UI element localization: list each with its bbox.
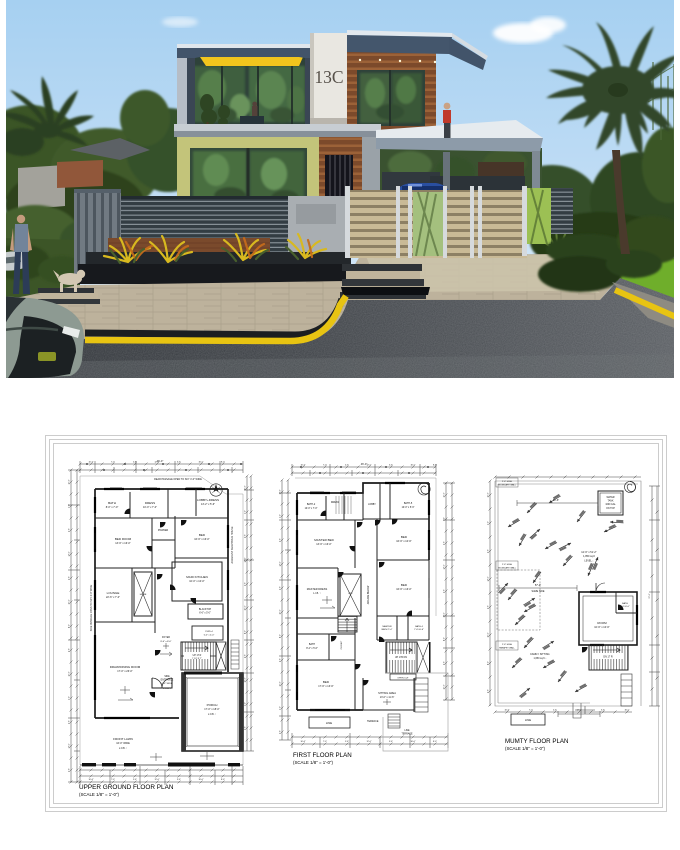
svg-text:7'-0": 7'-0" <box>111 462 115 464</box>
svg-text:10'-6": 10'-6" <box>443 684 445 689</box>
svg-text:12'-6" x 51'-2": 12'-6" x 51'-2" <box>581 551 596 554</box>
svg-text:UP 17 R: UP 17 R <box>193 655 202 657</box>
svg-text:1,850 sq.ft: 1,850 sq.ft <box>583 555 595 558</box>
svg-text:FAMILY SITTING: FAMILY SITTING <box>530 653 549 656</box>
svg-text:LEVEL ↓: LEVEL ↓ <box>584 560 593 563</box>
svg-text:LOUNGE: LOUNGE <box>107 591 120 595</box>
svg-text:3'-6": 3'-6" <box>244 582 246 586</box>
svg-text:TERRACE: TERRACE <box>402 733 413 736</box>
svg-text:7'-0": 7'-0" <box>279 514 281 518</box>
svg-text:8'-0": 8'-0" <box>68 624 70 628</box>
svg-text:17'-0" x 26'-0": 17'-0" x 26'-0" <box>117 670 132 673</box>
svg-text:10'-0" x 5'-6": 10'-0" x 5'-6" <box>402 507 415 509</box>
svg-text:10'-6": 10'-6" <box>68 671 70 676</box>
svg-text:BED ROOM: BED ROOM <box>115 537 132 541</box>
svg-text:13'-6" x 16'-0": 13'-6" x 16'-0" <box>115 542 130 545</box>
svg-text:(SCALE 1/8" = 1'-0"): (SCALE 1/8" = 1'-0") <box>79 792 119 797</box>
svg-text:ADJACENT NEIGHBOUR HOUSE: ADJACENT NEIGHBOUR HOUSE <box>231 526 234 563</box>
svg-text:5'-6": 5'-6" <box>279 730 281 734</box>
svg-text:ON TOP: ON TOP <box>606 508 615 510</box>
svg-text:BOUNDARY WALL: BOUNDARY WALL <box>498 567 517 570</box>
svg-text:P.WD-4: P.WD-4 <box>205 631 213 633</box>
svg-text:10'-6": 10'-6" <box>443 492 445 497</box>
svg-text:17'-6" x 13'-6": 17'-6" x 13'-6" <box>318 685 333 688</box>
svg-text:SIDE PASSAGE OPEN TO SKY 3'-0": SIDE PASSAGE OPEN TO SKY 3'-0" WIDE <box>90 584 93 631</box>
svg-text:BED: BED <box>199 533 206 537</box>
svg-text:12'-0": 12'-0" <box>279 561 281 566</box>
svg-text:10'-6": 10'-6" <box>300 465 305 467</box>
svg-text:12'-0": 12'-0" <box>487 576 489 581</box>
svg-text:8'-0" x 8'-0": 8'-0" x 8'-0" <box>160 641 171 643</box>
svg-text:FRONT LAWN: FRONT LAWN <box>113 737 133 741</box>
svg-text:22'-6" x 7'-0": 22'-6" x 7'-0" <box>106 596 120 599</box>
svg-text:LOBBY: LOBBY <box>368 504 376 506</box>
svg-text:MASTER: MASTER <box>382 625 392 628</box>
svg-text:57'-0": 57'-0" <box>535 584 541 587</box>
svg-text:TANK: TANK <box>608 500 614 503</box>
svg-text:2'-6" HIGH: 2'-6" HIGH <box>502 564 512 566</box>
svg-text:5'-6": 5'-6" <box>133 779 137 781</box>
svg-text:10'-6": 10'-6" <box>300 741 305 743</box>
svg-text:7'-0": 7'-0" <box>323 465 327 467</box>
svg-text:5'-6": 5'-6" <box>244 534 246 538</box>
svg-text:37'-6": 37'-6" <box>649 593 651 598</box>
svg-text:4'-6": 4'-6" <box>244 654 246 658</box>
svg-text:7'-0": 7'-0" <box>529 709 533 711</box>
svg-text:10'-6": 10'-6" <box>244 485 246 490</box>
svg-text:(SCALE 1/8" = 1'-0"): (SCALE 1/8" = 1'-0") <box>505 746 545 751</box>
svg-text:BATH: BATH <box>309 643 315 646</box>
svg-text:12'-0": 12'-0" <box>244 557 246 562</box>
svg-text:6'-0" x 4'-0": 6'-0" x 4'-0" <box>204 635 215 637</box>
svg-text:(SCALE 1/8" = 1'-0"): (SCALE 1/8" = 1'-0") <box>293 760 333 765</box>
svg-text:OPEN CUT: OPEN CUT <box>397 678 409 680</box>
svg-text:3'-6": 3'-6" <box>279 586 281 590</box>
svg-text:L.O.B. ↑: L.O.B. ↑ <box>208 713 216 716</box>
svg-text:BED: BED <box>323 680 330 684</box>
svg-text:5'-6": 5'-6" <box>487 549 489 553</box>
svg-text:16'-0": 16'-0" <box>279 609 281 614</box>
svg-text:10'-6": 10'-6" <box>487 492 489 497</box>
svg-text:3'-6": 3'-6" <box>389 465 393 467</box>
svg-text:4'-6": 4'-6" <box>443 661 445 665</box>
svg-text:3'-6": 3'-6" <box>68 576 70 580</box>
svg-text:5'-6": 5'-6" <box>345 741 349 743</box>
svg-text:8'-0": 8'-0" <box>433 465 437 467</box>
svg-text:13'-6" x 16'-0": 13'-6" x 16'-0" <box>316 543 331 546</box>
svg-text:3'-6": 3'-6" <box>177 462 181 464</box>
svg-text:10'-0" x 7'-0": 10'-0" x 7'-0" <box>305 508 318 510</box>
svg-text:8'-0": 8'-0" <box>433 741 437 743</box>
svg-text:16'-0": 16'-0" <box>244 605 246 610</box>
svg-text:BATH-2: BATH-2 <box>307 503 316 506</box>
svg-text:DN 17 R: DN 17 R <box>603 656 612 659</box>
svg-text:7'-0": 7'-0" <box>244 702 246 706</box>
svg-text:7'-0": 7'-0" <box>68 696 70 700</box>
svg-text:BATH-4: BATH-4 <box>415 625 423 628</box>
svg-text:5'-6": 5'-6" <box>244 726 246 730</box>
svg-text:12'-0": 12'-0" <box>154 462 159 464</box>
svg-text:DRESS: DRESS <box>145 501 155 505</box>
svg-text:12'-0": 12'-0" <box>366 465 371 467</box>
svg-text:5'-6": 5'-6" <box>345 465 349 467</box>
svg-text:16'-0": 16'-0" <box>487 632 489 637</box>
svg-text:REAR PASSAGE OPEN TO SKY 4'-0": REAR PASSAGE OPEN TO SKY 4'-0" WIDE <box>154 478 202 481</box>
svg-text:16'-6" x 16'-0": 16'-6" x 16'-0" <box>194 538 209 541</box>
svg-text:2'-6" HIGH: 2'-6" HIGH <box>502 481 512 483</box>
svg-text:BATH 7'x7': BATH 7'x7' <box>382 628 393 631</box>
svg-text:DRAW/DINING ROOM: DRAW/DINING ROOM <box>110 665 141 669</box>
svg-text:7'-0": 7'-0" <box>279 706 281 710</box>
svg-text:BATH: BATH <box>622 602 628 605</box>
svg-text:5'-6": 5'-6" <box>68 720 70 724</box>
svg-text:17'-0" x 18'-0": 17'-0" x 18'-0" <box>204 708 219 711</box>
svg-text:10'-6": 10'-6" <box>279 489 281 494</box>
svg-text:13'-2" x 5'-6": 13'-2" x 5'-6" <box>201 503 215 506</box>
svg-text:7'-0": 7'-0" <box>323 741 327 743</box>
svg-text:16'-0": 16'-0" <box>198 779 203 781</box>
svg-text:SIDE: SIDE <box>164 676 170 678</box>
svg-text:8'-0": 8'-0" <box>279 634 281 638</box>
svg-text:LIFT: LIFT <box>348 593 353 595</box>
svg-text:LINE: LINE <box>404 730 410 732</box>
svg-text:MUMTY FLOOR PLAN: MUMTY FLOOR PLAN <box>505 738 569 745</box>
svg-text:4'-6": 4'-6" <box>279 658 281 662</box>
svg-text:8'-0": 8'-0" <box>221 462 225 464</box>
svg-text:5'-6": 5'-6" <box>443 541 445 545</box>
svg-text:46'-0": 46'-0" <box>365 747 372 751</box>
svg-text:7'-0": 7'-0" <box>443 517 445 521</box>
svg-text:UPPER GROUND FLOOR PLAN: UPPER GROUND FLOOR PLAN <box>79 784 174 791</box>
svg-text:13'-0" x 11'-6": 13'-0" x 11'-6" <box>380 696 395 699</box>
svg-text:10'-0" x 10'-0": 10'-0" x 10'-0" <box>189 580 204 583</box>
svg-text:16'-0": 16'-0" <box>410 741 415 743</box>
svg-text:3'-6": 3'-6" <box>601 709 605 711</box>
svg-text:10'-6": 10'-6" <box>68 479 70 484</box>
svg-text:8'-0": 8'-0" <box>244 630 246 634</box>
svg-text:3'-6": 3'-6" <box>443 589 445 593</box>
svg-text:4'-6": 4'-6" <box>68 648 70 652</box>
svg-text:10'-6": 10'-6" <box>88 779 93 781</box>
svg-text:WATER: WATER <box>606 496 614 499</box>
svg-text:10'-6": 10'-6" <box>504 709 509 711</box>
svg-text:ARCADE BELOW: ARCADE BELOW <box>367 585 370 604</box>
svg-text:16'-0" WIDE: 16'-0" WIDE <box>116 742 130 745</box>
svg-text:10'-6": 10'-6" <box>88 462 93 464</box>
svg-text:TERRACE: TERRACE <box>367 720 379 723</box>
svg-text:13C: 13C <box>314 67 343 87</box>
svg-text:6'-6" x 5'-0": 6'-6" x 5'-0" <box>199 613 211 615</box>
svg-text:ROOM: ROOM <box>597 621 607 625</box>
svg-text:FIRST FLOOR PLAN: FIRST FLOOR PLAN <box>293 752 352 759</box>
svg-text:MASTER DRESS: MASTER DRESS <box>307 587 328 591</box>
svg-text:SAME SIDE: SAME SIDE <box>531 590 544 593</box>
svg-text:LOBBY+DRESS: LOBBY+DRESS <box>197 498 219 502</box>
svg-text:8'-4" x 5'-6": 8'-4" x 5'-6" <box>306 648 318 650</box>
svg-text:POWDER: POWDER <box>158 530 169 532</box>
svg-text:SITTING AREA: SITTING AREA <box>378 691 396 695</box>
svg-text:3'-6": 3'-6" <box>389 741 393 743</box>
svg-text:3'-6": 3'-6" <box>177 779 181 781</box>
svg-text:12'-0": 12'-0" <box>68 551 70 556</box>
svg-text:5'-6": 5'-6" <box>279 538 281 542</box>
svg-text:5'-6": 5'-6" <box>553 709 557 711</box>
svg-text:12'-0": 12'-0" <box>68 743 70 748</box>
svg-text:LINE: LINE <box>525 718 531 722</box>
svg-text:DRESS: DRESS <box>331 501 340 504</box>
svg-text:L.I.B. ↑: L.I.B. ↑ <box>313 592 320 595</box>
svg-text:16'-0": 16'-0" <box>624 709 629 711</box>
svg-text:4'-6": 4'-6" <box>487 689 489 693</box>
svg-text:2'-6" HIGH: 2'-6" HIGH <box>502 644 512 646</box>
svg-text:HOME: HOME <box>140 594 147 596</box>
svg-text:UP 17R DN: UP 17R DN <box>395 657 407 659</box>
svg-text:CLOSET: CLOSET <box>341 640 343 649</box>
svg-text:12'-0": 12'-0" <box>366 741 371 743</box>
svg-text:7'-0": 7'-0" <box>487 521 489 525</box>
svg-text:L.O.B. ↑: L.O.B. ↑ <box>119 747 127 750</box>
svg-text:5'-6": 5'-6" <box>68 528 70 532</box>
svg-text:1,650 sq.ft ↓: 1,650 sq.ft ↓ <box>533 657 546 660</box>
svg-text:12'-0": 12'-0" <box>154 779 159 781</box>
svg-text:MAID KITCHEN: MAID KITCHEN <box>186 575 208 579</box>
svg-text:5'-6": 5'-6" <box>133 462 137 464</box>
svg-text:BED: BED <box>401 583 408 587</box>
svg-text:16'-6" x 16'-0": 16'-6" x 16'-0" <box>396 588 411 591</box>
svg-text:PORCH: PORCH <box>207 703 218 707</box>
svg-text:16'-0": 16'-0" <box>68 599 70 604</box>
svg-text:10'-6": 10'-6" <box>244 677 246 682</box>
svg-text:T 10" R 7": T 10" R 7" <box>192 658 202 660</box>
svg-text:BATH: BATH <box>108 501 116 505</box>
svg-text:7'-0": 7'-0" <box>68 504 70 508</box>
svg-text:BED: BED <box>401 535 408 539</box>
svg-text:16'-0": 16'-0" <box>410 465 415 467</box>
svg-text:12'-0": 12'-0" <box>443 564 445 569</box>
svg-text:MASTER BED: MASTER BED <box>314 538 334 542</box>
svg-text:16'-0": 16'-0" <box>443 612 445 617</box>
svg-text:8'-0": 8'-0" <box>221 779 225 781</box>
svg-text:3'-6": 3'-6" <box>487 605 489 609</box>
svg-text:7'-0": 7'-0" <box>244 510 246 514</box>
svg-text:3'-6": 3'-6" <box>68 768 70 772</box>
svg-text:LINE: LINE <box>326 721 332 725</box>
svg-text:16'-6" x 10'-6": 16'-6" x 10'-6" <box>396 540 411 543</box>
svg-text:PARAPET WALL: PARAPET WALL <box>499 647 516 650</box>
svg-text:7'-0"x5'-6": 7'-0"x5'-6" <box>414 629 424 631</box>
svg-text:8'-0": 8'-0" <box>443 637 445 641</box>
svg-text:1000 GAL: 1000 GAL <box>605 503 616 506</box>
svg-text:10'-6" x 10'-6": 10'-6" x 10'-6" <box>594 626 609 629</box>
svg-text:10'-0" x 7'-0": 10'-0" x 7'-0" <box>143 506 157 509</box>
svg-text:8'-0" x 7'-0": 8'-0" x 7'-0" <box>106 506 119 509</box>
svg-text:16'-0": 16'-0" <box>198 462 203 464</box>
svg-text:FOYER: FOYER <box>162 637 170 639</box>
svg-text:BOUNDARY WALL: BOUNDARY WALL <box>498 484 517 487</box>
svg-text:BATH-5: BATH-5 <box>404 502 413 505</box>
svg-text:BLACKTOP: BLACKTOP <box>199 608 212 611</box>
svg-text:10'-6": 10'-6" <box>279 681 281 686</box>
svg-text:8'-0": 8'-0" <box>487 661 489 665</box>
svg-text:7'-0": 7'-0" <box>111 779 115 781</box>
